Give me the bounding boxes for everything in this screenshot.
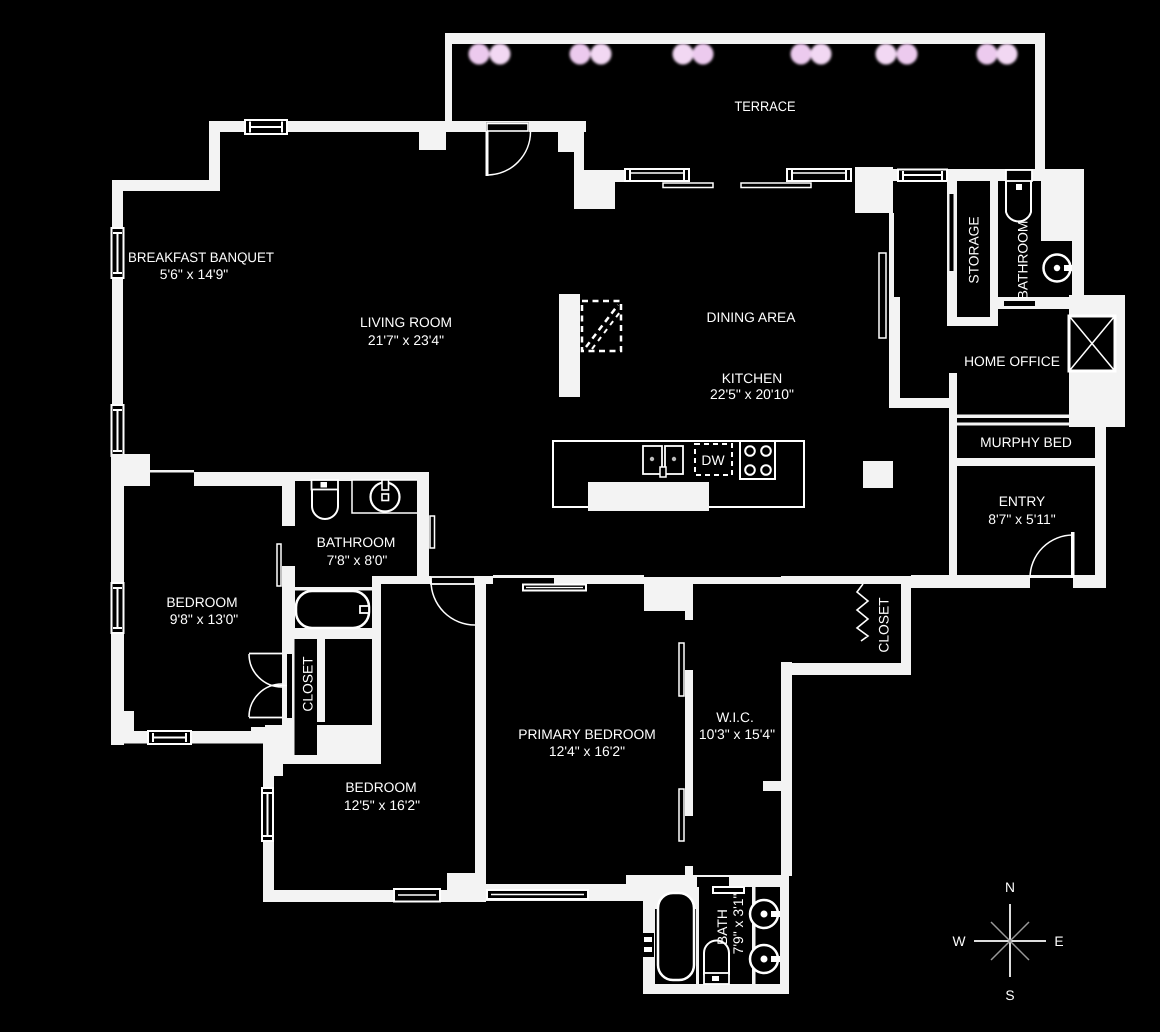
svg-text:LIVING ROOM: LIVING ROOM: [360, 315, 452, 330]
svg-text:9'8" x 13'0": 9'8" x 13'0": [170, 611, 239, 627]
svg-text:HOME OFFICE: HOME OFFICE: [964, 354, 1060, 369]
svg-text:8'7" x 5'11": 8'7" x 5'11": [988, 511, 1055, 527]
svg-text:BREAKFAST BANQUET: BREAKFAST BANQUET: [128, 250, 275, 265]
svg-text:21'7" x 23'4": 21'7" x 23'4": [368, 332, 444, 348]
svg-text:W: W: [952, 934, 965, 949]
svg-text:10'3" x 15'4": 10'3" x 15'4": [699, 726, 775, 742]
svg-text:BEDROOM: BEDROOM: [345, 780, 416, 795]
svg-text:12'4" x 16'2": 12'4" x 16'2": [549, 743, 625, 759]
svg-text:S: S: [1005, 988, 1014, 1003]
svg-text:STORAGE: STORAGE: [967, 216, 982, 283]
svg-text:CLOSET: CLOSET: [877, 597, 892, 653]
svg-text:DINING AREA: DINING AREA: [707, 310, 797, 325]
svg-text:7'8" x 8'0": 7'8" x 8'0": [327, 552, 388, 568]
svg-text:KITCHEN: KITCHEN: [722, 371, 783, 386]
svg-text:22'5" x 20'10": 22'5" x 20'10": [710, 386, 794, 402]
svg-text:CLOSET: CLOSET: [301, 656, 316, 712]
svg-text:PRIMARY BEDROOM: PRIMARY BEDROOM: [518, 727, 655, 742]
svg-text:ENTRY: ENTRY: [999, 494, 1046, 509]
svg-text:7'9" x 3'1": 7'9" x 3'1": [730, 894, 746, 955]
svg-text:TERRACE: TERRACE: [735, 99, 796, 114]
svg-text:5'6" x 14'9": 5'6" x 14'9": [160, 266, 229, 282]
svg-text:DW: DW: [701, 452, 725, 468]
svg-text:12'5" x 16'2": 12'5" x 16'2": [344, 797, 420, 813]
svg-text:BEDROOM: BEDROOM: [166, 595, 237, 610]
svg-text:MURPHY BED: MURPHY BED: [980, 435, 1072, 450]
svg-text:N: N: [1005, 880, 1015, 895]
svg-text:BATHROOM: BATHROOM: [317, 535, 396, 550]
svg-text:W.I.C.: W.I.C.: [716, 710, 754, 725]
svg-text:E: E: [1054, 934, 1063, 949]
svg-text:BATHROOM: BATHROOM: [1016, 221, 1031, 300]
svg-text:BATH: BATH: [715, 909, 730, 945]
